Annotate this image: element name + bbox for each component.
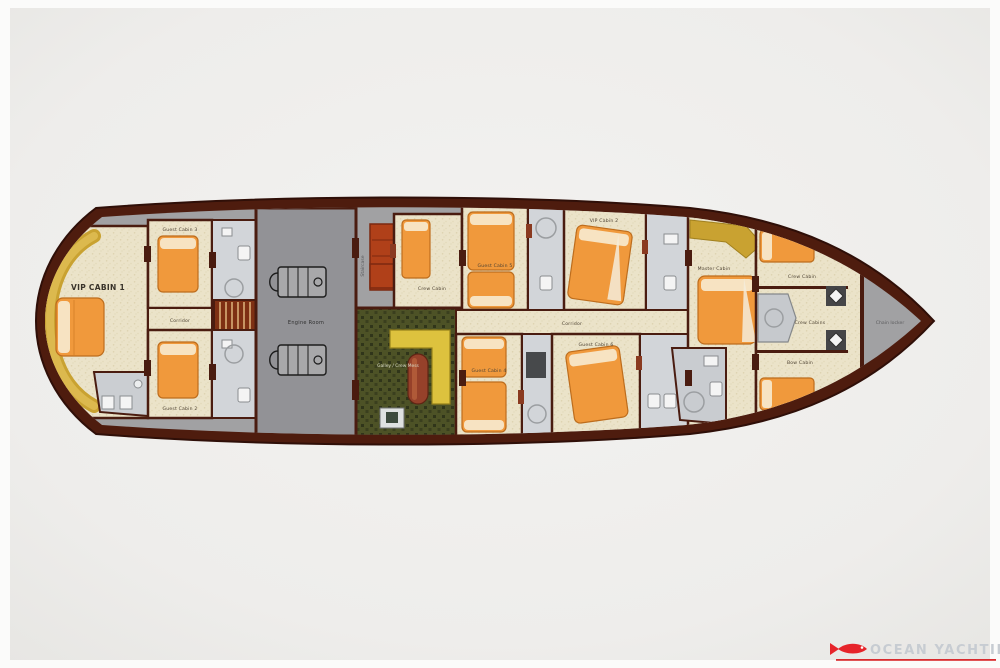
corridor-label: Corridor: [562, 321, 582, 327]
bed-icon: [462, 382, 506, 432]
room-crew-mid: Crew Cabin: [394, 214, 462, 308]
galley-table: [408, 354, 428, 404]
bed-icon: [56, 298, 104, 356]
bathroom: [212, 220, 256, 308]
corridor-aft: Corridor: [148, 308, 212, 332]
toilet-icon: [102, 396, 114, 409]
sink-icon: [222, 340, 232, 348]
room-label: Engine Room: [288, 320, 324, 326]
room-guest-cabin-2: Guest Cabin 2: [148, 330, 212, 418]
room-guest-cabin-5: Guest Cabin 5: [462, 206, 528, 310]
room-label: Guest Cabin 4: [471, 368, 506, 374]
room-label: Guest Cabin 6: [578, 342, 613, 348]
room-galley: Galley / Crew Mess: [356, 308, 462, 436]
room-label: Guest Cabin 5: [477, 263, 512, 269]
room-label: Bow Cabin: [787, 360, 813, 366]
watermark-text: OCEAN YACHTING: [870, 643, 1000, 658]
engine-icon: [270, 345, 326, 375]
cabinet-icon: [526, 352, 546, 378]
sink-icon: [222, 228, 232, 236]
room-engine: Engine Room: [256, 208, 356, 436]
sink-icon: [120, 396, 132, 409]
bed-icon: [158, 236, 198, 292]
sink-icon: [704, 356, 718, 366]
room-label: Crew Cabin: [418, 286, 446, 292]
room-label: Galley / Crew Mess: [377, 363, 419, 369]
watermark-underline: [836, 659, 996, 661]
yacht-deck-plan: VIP CABIN 1 Guest Cabin 3 Corridor: [0, 0, 1000, 668]
bed-icon: [698, 276, 756, 344]
bed-icon: [565, 345, 628, 424]
bidet-icon: [664, 394, 676, 408]
bathroom: [212, 330, 256, 418]
bathroom: [672, 348, 726, 424]
bathroom: [528, 206, 564, 310]
room-label: VIP CABIN 1: [71, 283, 125, 292]
bed-icon: [567, 224, 633, 305]
toilet-compartment: [826, 330, 846, 350]
shower-icon: [134, 380, 142, 388]
room-label: Crew Cabins: [795, 320, 826, 326]
toilet-icon: [664, 276, 676, 290]
bed-icon: [468, 272, 514, 308]
room-label: Crew Cabin: [788, 274, 816, 280]
bow-label: Chain locker: [876, 320, 905, 326]
wall: [756, 350, 848, 353]
sink-icon: [664, 234, 678, 244]
corridor-label: Corridor: [170, 318, 190, 324]
bed-icon: [468, 212, 514, 270]
bathroom: [646, 206, 688, 310]
toilet-compartment: [826, 286, 846, 306]
room-guest-cabin-6: Guest Cabin 6: [552, 334, 640, 434]
toilet-icon: [238, 388, 250, 402]
corridor-fwd: Corridor: [456, 310, 688, 334]
bathroom: [522, 334, 552, 436]
floor-plan-page: VIP CABIN 1 Guest Cabin 3 Corridor: [0, 0, 1000, 668]
toilet-icon: [540, 276, 552, 290]
appliance-icon: [380, 408, 404, 428]
room-label: Guest Cabin 3: [162, 227, 197, 233]
staircase-label: Staircase: [360, 255, 366, 276]
bed-icon: [158, 342, 198, 398]
bathroom: [94, 372, 148, 416]
toilet-icon: [648, 394, 660, 408]
toilet-icon: [710, 382, 722, 396]
engine-icon: [270, 267, 326, 297]
room-label: VIP Cabin 2: [590, 218, 618, 224]
room-label: Master Cabin: [698, 266, 731, 272]
room-label: Guest Cabin 2: [162, 406, 197, 412]
room-guest-cabin-3: Guest Cabin 3: [148, 220, 212, 308]
bed-icon: [402, 220, 430, 278]
shower-stall: [758, 294, 796, 342]
room-vip-cabin-2: VIP Cabin 2: [564, 206, 646, 310]
toilet-icon: [238, 246, 250, 260]
stairs-icon: [214, 300, 256, 334]
